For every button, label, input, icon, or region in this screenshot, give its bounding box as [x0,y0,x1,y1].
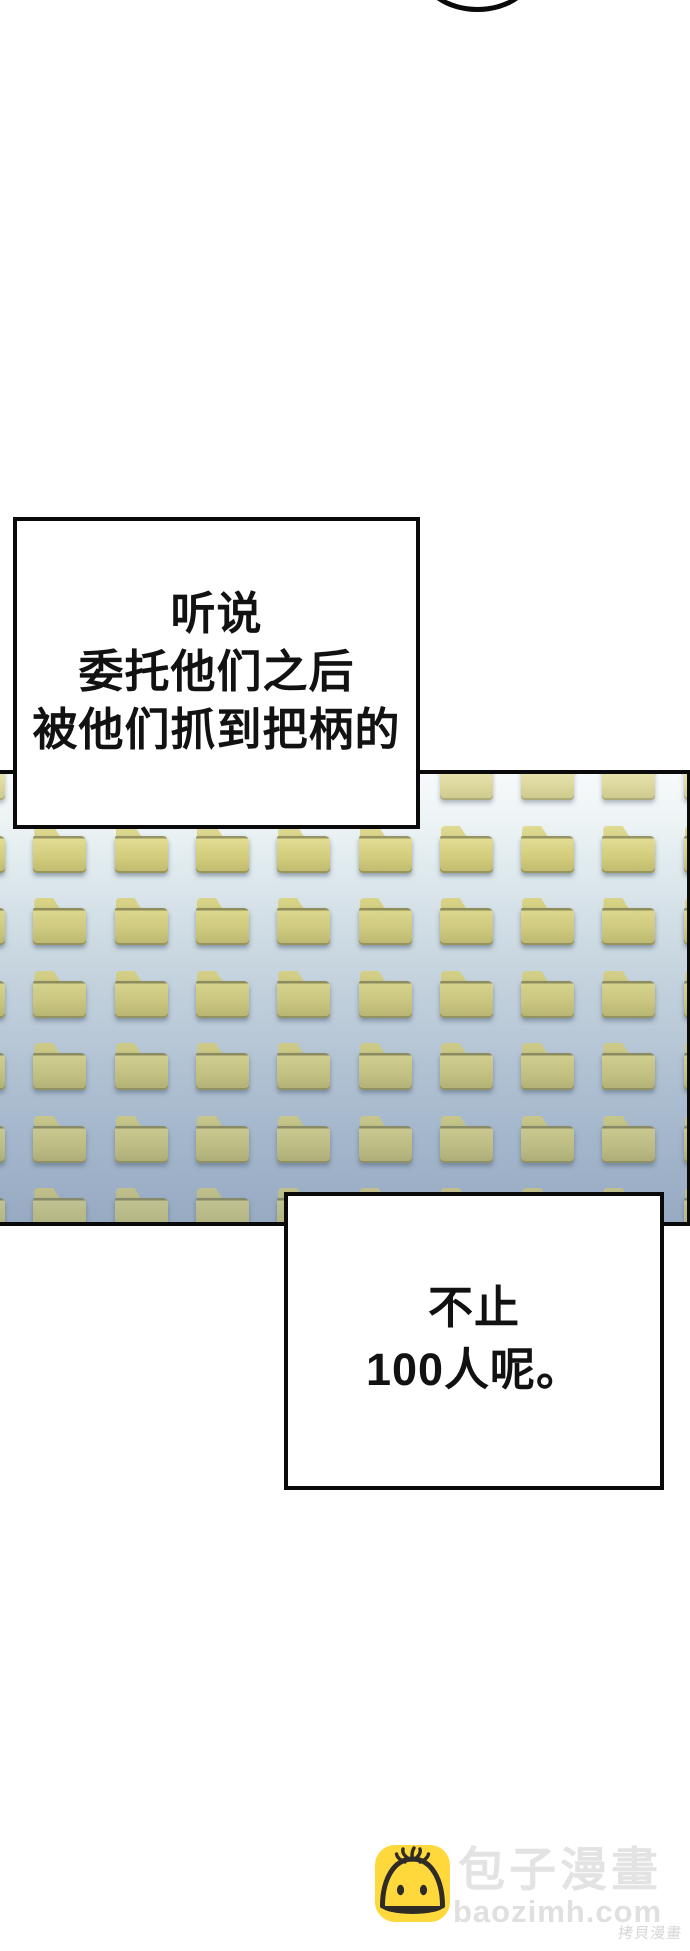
folder-icon [0,1043,5,1091]
folder-icon [0,1116,5,1164]
folder-icon [0,1188,5,1226]
folder-icon [33,1043,86,1091]
bubble1-line-1: 听说 [17,585,416,643]
bubble1-line-3: 被他们抓到把柄的 [17,701,416,759]
folder-icon [33,898,86,946]
folder-icon [521,770,574,801]
folder-icon [359,1043,412,1091]
offscreen-bubble-arc [420,0,535,12]
folder-icon [196,1116,249,1164]
folder-grid [0,774,687,1222]
folder-icon [602,1116,655,1164]
folder-icon [115,971,168,1019]
folder-icon [602,1043,655,1091]
folder-icon [440,770,493,801]
folder-icon [196,898,249,946]
folder-icon [277,898,330,946]
folder-icon [521,971,574,1019]
folder-icon [684,971,690,1019]
folder-icon [602,770,655,801]
folder-icon [684,770,690,801]
folder-icon [684,1043,690,1091]
folder-icon [33,1116,86,1164]
folder-icon [115,1043,168,1091]
folder-icon [277,1116,330,1164]
folder-icon [521,898,574,946]
folder-icon [684,1188,690,1226]
folder-icon [0,971,5,1019]
speech-bubble-2: 不止 100人呢。 [284,1192,664,1490]
folder-icon [440,971,493,1019]
folder-icon [440,898,493,946]
watermark-site-name: 包子漫畫 [458,1845,668,1895]
folder-icon [0,898,5,946]
folder-icon [359,971,412,1019]
speech-bubble-1: 听说 委托他们之后 被他们抓到把柄的 [13,517,420,829]
folder-icon [440,826,493,874]
comic-page: 听说 委托他们之后 被他们抓到把柄的 不止 100人呢。 [0,0,690,1951]
folder-icon [277,1043,330,1091]
folder-icon [684,1116,690,1164]
folder-icon [602,826,655,874]
folder-icon [277,971,330,1019]
folder-icon [521,1116,574,1164]
folder-icon [196,971,249,1019]
folder-icon [0,826,5,874]
watermark-site-url: baozimh.com [453,1896,673,1928]
folder-icon [359,898,412,946]
folder-icon [115,1188,168,1226]
watermark-corner-text: 拷貝漫畫 [559,1926,683,1942]
folder-icon [277,826,330,874]
folder-icon [684,898,690,946]
folder-icon [602,898,655,946]
folder-icon [602,971,655,1019]
folder-icon [521,826,574,874]
folder-icon [33,826,86,874]
folder-icon [359,826,412,874]
folder-icon [115,1116,168,1164]
folder-icon [440,1116,493,1164]
bubble2-line-2: 100人呢。 [288,1339,660,1401]
folder-icon [33,971,86,1019]
folder-icon [521,1043,574,1091]
bubble1-line-2: 委托他们之后 [17,643,416,701]
folder-screen-panel [0,770,690,1226]
folder-icon [115,826,168,874]
folder-icon [196,1043,249,1091]
bubble2-line-1: 不止 [288,1277,660,1339]
folder-icon [33,1188,86,1226]
folder-icon [440,1043,493,1091]
baozi-bun-icon [375,1845,450,1922]
folder-icon [196,826,249,874]
folder-icon [115,898,168,946]
folder-icon [0,770,5,801]
folder-icon [196,1188,249,1226]
folder-icon [359,1116,412,1164]
folder-icon [684,826,690,874]
